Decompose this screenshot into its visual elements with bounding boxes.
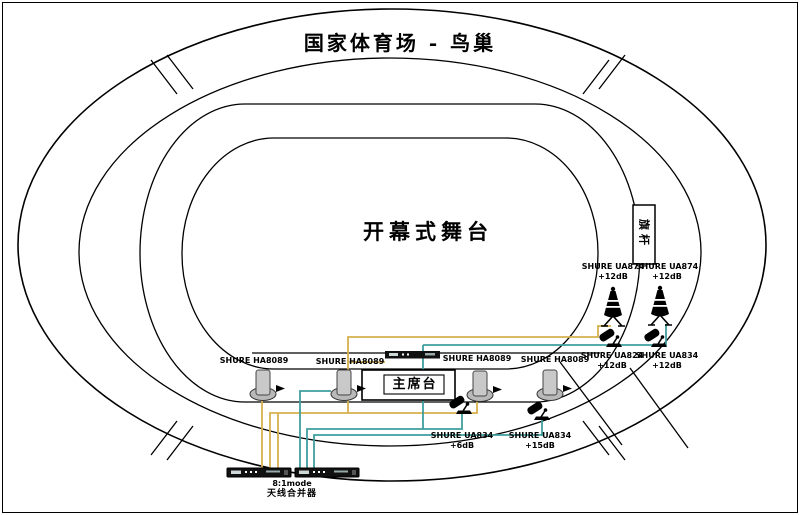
label-helical-antenna-3: SHURE HA8089: [443, 354, 512, 364]
label-amp-bottom-1: SHURE UA834 +6dB: [431, 431, 494, 450]
helical-antenna-icon: [250, 370, 285, 401]
label-antenna-combiner: 8:1mode 天线合并器: [267, 479, 317, 499]
stage-label: 开幕式舞台: [363, 221, 493, 242]
helical-antenna-icon: [331, 370, 366, 401]
combiner-name: 天线合并器: [267, 489, 317, 500]
label-active-antenna-2: SHURE UA874 +12dB: [636, 262, 699, 281]
amp-gain: +12dB: [636, 361, 699, 371]
amp-gain: +6dB: [431, 441, 494, 451]
label-amp-right-2: SHURE UA834 +12dB: [636, 351, 699, 370]
amp-model: SHURE UA834: [509, 431, 572, 441]
gate-top-right: [583, 55, 625, 94]
paddle-antenna-icon: [526, 400, 550, 420]
ramp-lines-bottom-right: [560, 362, 688, 448]
flagpole-label: 旗杆: [639, 219, 650, 249]
receiver-unit-icon: [385, 351, 440, 359]
label-amp-bottom-2: SHURE UA834 +15dB: [509, 431, 572, 450]
label-helical-antenna-2: SHURE HA8089: [316, 357, 385, 367]
active-antenna-icon: [648, 286, 672, 325]
active-antenna-icon: [601, 287, 625, 326]
stadium-diagram: [0, 0, 800, 515]
page-title: 国家体育场 - 鸟巢: [0, 33, 800, 53]
antenna-model: SHURE UA874: [636, 262, 699, 272]
label-helical-antenna-1: SHURE HA8089: [220, 356, 289, 366]
combiner-unit-icon: [227, 468, 291, 477]
amp-model: SHURE UA824: [581, 351, 644, 361]
rostrum-label: 主席台: [392, 378, 437, 391]
amp-model: SHURE UA834: [636, 351, 699, 361]
antenna-gain: +12dB: [636, 272, 699, 282]
amp-gain: +12dB: [581, 361, 644, 371]
label-amp-right-1: SHURE UA824 +12dB: [581, 351, 644, 370]
gate-bottom-left: [151, 421, 193, 460]
amp-model: SHURE UA834: [431, 431, 494, 441]
helical-antenna-icon: [467, 371, 502, 402]
helical-antenna-icon: [537, 370, 572, 401]
combiner-mode: 8:1mode: [267, 479, 317, 489]
paddle-antenna-icon: [598, 327, 622, 347]
amp-gain: +15dB: [509, 441, 572, 451]
stadium-diagram-page: 国家体育场 - 鸟巢 开幕式舞台 主席台 旗杆 SHURE HA8089 SHU…: [0, 0, 800, 515]
track-inner-ring: [182, 138, 598, 369]
combiner-unit-icon: [295, 468, 359, 477]
paddle-antenna-icon: [643, 327, 667, 347]
label-helical-antenna-4: SHURE HA8089: [521, 355, 590, 365]
